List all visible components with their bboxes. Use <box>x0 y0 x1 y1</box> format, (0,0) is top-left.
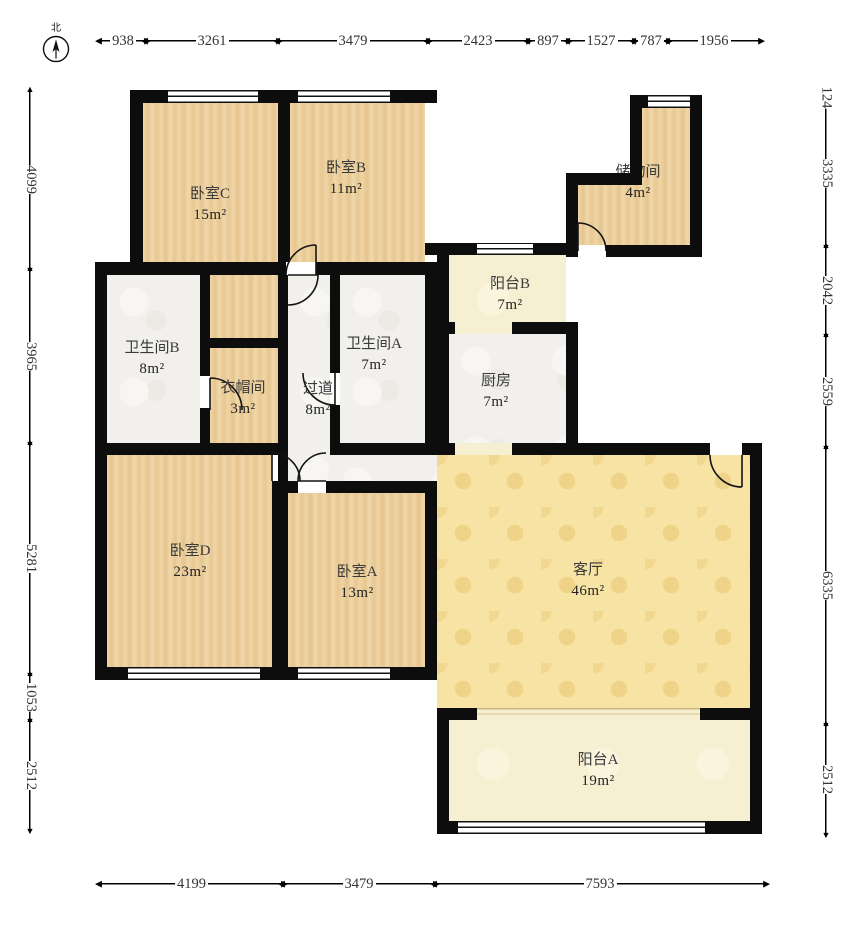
dim-segment: 3479 <box>278 34 428 48</box>
dim-label: 787 <box>638 33 664 50</box>
dim-segment: 787 <box>634 34 668 48</box>
dim-segment: 2512 <box>23 720 37 830</box>
room-name: 卫生间B <box>87 340 217 357</box>
dim-segment: 897 <box>528 34 568 48</box>
room-label-bathroom-b: 卫生间B 8m² <box>87 340 217 379</box>
dim-label: 1956 <box>698 33 731 50</box>
dimension-chain-right: 124 3335 2042 2559 6335 2512 <box>819 95 833 834</box>
dim-segment: 2512 <box>819 724 833 834</box>
dim-label: 2423 <box>462 33 495 50</box>
dim-label: 938 <box>110 33 136 50</box>
room-area: 8m² <box>253 402 383 419</box>
dim-segment: 6335 <box>819 447 833 724</box>
room-area: 46m² <box>523 583 653 600</box>
dim-segment: 124 <box>819 95 833 100</box>
door-entry <box>710 455 742 487</box>
dimension-chain-left: 4099 3965 5281 1053 2512 <box>23 90 37 830</box>
room-name: 卧室D <box>125 543 255 560</box>
room-name: 卫生间A <box>309 336 439 353</box>
compass-north-label: 北 <box>40 24 72 34</box>
dimension-chain-top: 938 3261 3479 2423 897 1527 787 1956 <box>100 34 760 48</box>
room-area: 8m² <box>87 361 217 378</box>
compass-icon <box>41 34 71 64</box>
dim-segment: 938 <box>100 34 146 48</box>
dim-label: 3335 <box>816 159 837 188</box>
room-label-bedroom-d: 卧室D 23m² <box>125 543 255 582</box>
dim-segment: 5281 <box>23 443 37 674</box>
dim-label: 4099 <box>20 165 41 194</box>
door-bedroom-a <box>298 453 326 481</box>
dim-segment: 1527 <box>568 34 634 48</box>
dim-label: 4199 <box>175 876 208 893</box>
dim-label: 3479 <box>343 876 376 893</box>
room-label-kitchen: 厨房 7m² <box>431 373 561 412</box>
dim-label: 2559 <box>816 377 837 406</box>
dim-segment: 7593 <box>435 877 765 891</box>
dim-label: 1053 <box>20 683 41 712</box>
room-area: 7m² <box>309 357 439 374</box>
room-label-bedroom-a: 卧室A 13m² <box>292 564 422 603</box>
dim-label: 3479 <box>337 33 370 50</box>
room-area: 13m² <box>292 585 422 602</box>
room-name: 客厅 <box>523 562 653 579</box>
door-bedroom-c <box>288 275 318 305</box>
door-storage <box>578 223 606 251</box>
room-label-balcony-b: 阳台B 7m² <box>445 276 575 315</box>
room-label-living-room: 客厅 46m² <box>523 562 653 601</box>
door-bedroom-b <box>286 245 316 275</box>
room-label-hallway: 过道 8m² <box>253 381 383 420</box>
room-label-bathroom-a: 卫生间A 7m² <box>309 336 439 375</box>
dim-label: 2042 <box>816 276 837 305</box>
dim-label: 2512 <box>20 761 41 790</box>
room-name: 厨房 <box>431 373 561 390</box>
dim-segment: 3335 <box>819 100 833 246</box>
room-label-bedroom-b: 卧室B 11m² <box>281 160 411 199</box>
compass: 北 <box>40 24 72 69</box>
dim-label: 6335 <box>816 571 837 600</box>
dim-segment: 1956 <box>668 34 760 48</box>
dim-segment: 4099 <box>23 90 37 269</box>
door-arcs <box>0 0 856 927</box>
dim-label: 897 <box>535 33 561 50</box>
dim-segment: 4199 <box>100 877 283 891</box>
room-name: 卧室C <box>145 186 275 203</box>
room-area: 7m² <box>431 394 561 411</box>
room-label-bedroom-c: 卧室C 15m² <box>145 186 275 225</box>
room-area: 19m² <box>533 773 663 790</box>
floor-plan: 卧室C 15m² 卧室B 11m² 储物间 4m² 阳台B 7m² 卫生间B 8… <box>0 0 856 927</box>
dim-label: 124 <box>816 87 837 109</box>
room-area: 7m² <box>445 297 575 314</box>
dim-segment: 3479 <box>283 877 435 891</box>
room-name: 阳台A <box>533 752 663 769</box>
room-area: 15m² <box>145 207 275 224</box>
door-bedroom-d <box>272 453 300 481</box>
room-name: 卧室A <box>292 564 422 581</box>
dim-segment: 2042 <box>819 246 833 335</box>
dim-segment: 2559 <box>819 335 833 447</box>
room-area: 11m² <box>281 181 411 198</box>
room-label-balcony-a: 阳台A 19m² <box>533 752 663 791</box>
dim-label: 3965 <box>20 342 41 371</box>
room-name: 阳台B <box>445 276 575 293</box>
dim-label: 3261 <box>196 33 229 50</box>
dim-label: 7593 <box>584 876 617 893</box>
dim-segment: 3261 <box>146 34 278 48</box>
dim-segment: 3965 <box>23 269 37 443</box>
dimension-chain-bottom: 4199 3479 7593 <box>100 877 765 891</box>
room-name: 卧室B <box>281 160 411 177</box>
dim-label: 1527 <box>585 33 618 50</box>
room-area: 23m² <box>125 564 255 581</box>
dim-label: 2512 <box>816 765 837 794</box>
dim-label: 5281 <box>20 544 41 573</box>
dim-segment: 2423 <box>428 34 528 48</box>
room-name: 过道 <box>253 381 383 398</box>
